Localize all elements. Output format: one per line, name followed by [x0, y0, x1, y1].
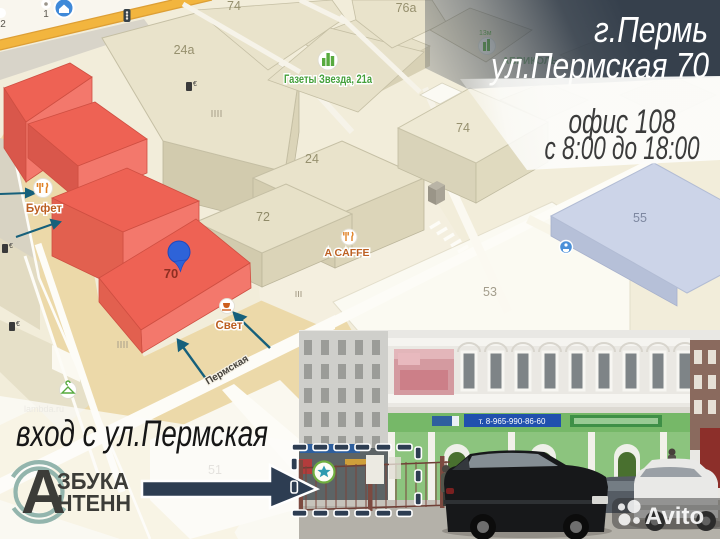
- svg-text:1: 1: [43, 9, 49, 20]
- svg-text:€: €: [193, 81, 197, 88]
- svg-text:НТЕНН: НТЕНН: [57, 490, 131, 516]
- svg-text:2: 2: [0, 19, 6, 30]
- svg-text:74: 74: [227, 0, 241, 13]
- svg-text:72: 72: [256, 210, 270, 224]
- svg-text:74: 74: [456, 121, 470, 135]
- svg-text:Свет: Свет: [215, 320, 242, 332]
- svg-text:24а: 24а: [174, 43, 195, 57]
- svg-text:55: 55: [633, 211, 647, 225]
- svg-text:24: 24: [305, 152, 319, 166]
- svg-text:€: €: [9, 243, 13, 250]
- svg-text:т. 8-965-990-86-60: т. 8-965-990-86-60: [479, 417, 546, 426]
- svg-text:53: 53: [483, 285, 497, 299]
- svg-text:с 8:00 до 18:00: с 8:00 до 18:00: [545, 130, 700, 166]
- svg-text:70: 70: [164, 266, 178, 281]
- svg-text:€: €: [16, 321, 20, 328]
- svg-text:г.Пермь: г.Пермь: [594, 9, 708, 50]
- svg-text:A CAFFE: A CAFFE: [324, 247, 369, 259]
- svg-text:Буфет: Буфет: [26, 203, 63, 215]
- svg-text:76а: 76а: [396, 1, 417, 15]
- svg-text:вход с ул.Пермская: вход с ул.Пермская: [16, 413, 268, 454]
- svg-text:Avito: Avito: [645, 503, 704, 530]
- svg-text:Газеты Звезда, 21а: Газеты Звезда, 21а: [284, 74, 372, 86]
